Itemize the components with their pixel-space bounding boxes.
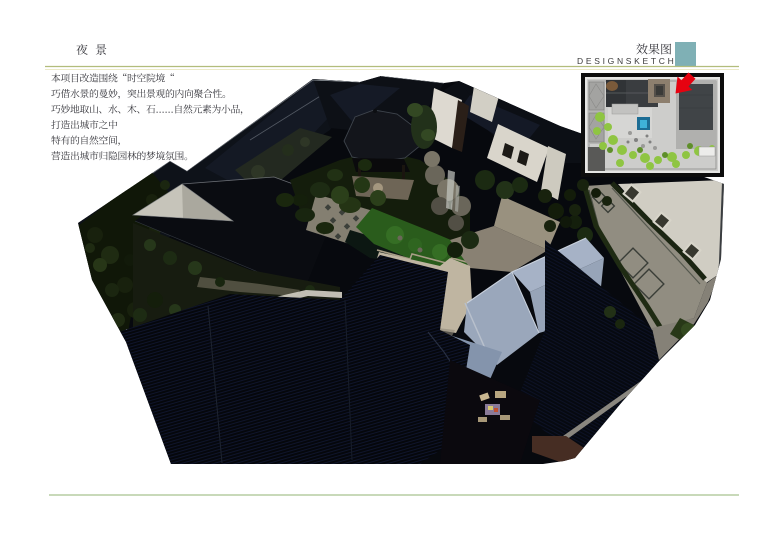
svg-text:DESIGNSKETCH: DESIGNSKETCH — [577, 56, 676, 66]
